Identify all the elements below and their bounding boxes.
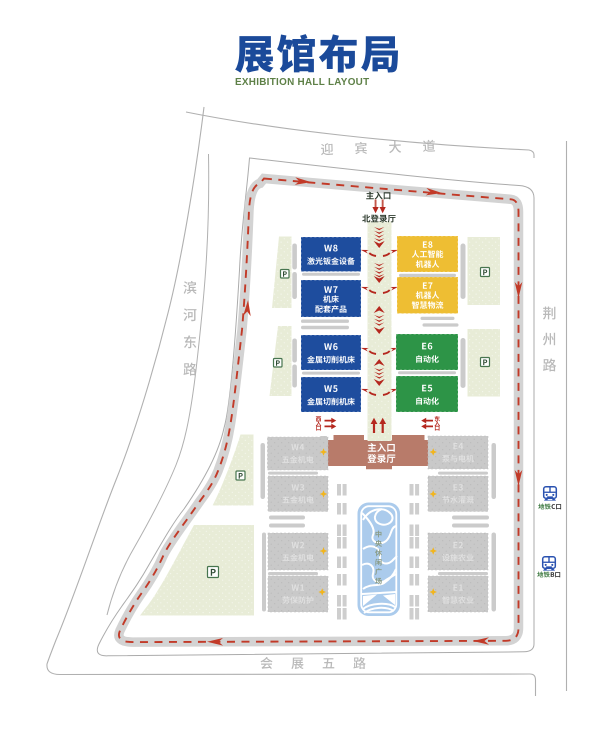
svg-text:EXHIBITION HALL LAYOUT: EXHIBITION HALL LAYOUT [235, 77, 369, 88]
